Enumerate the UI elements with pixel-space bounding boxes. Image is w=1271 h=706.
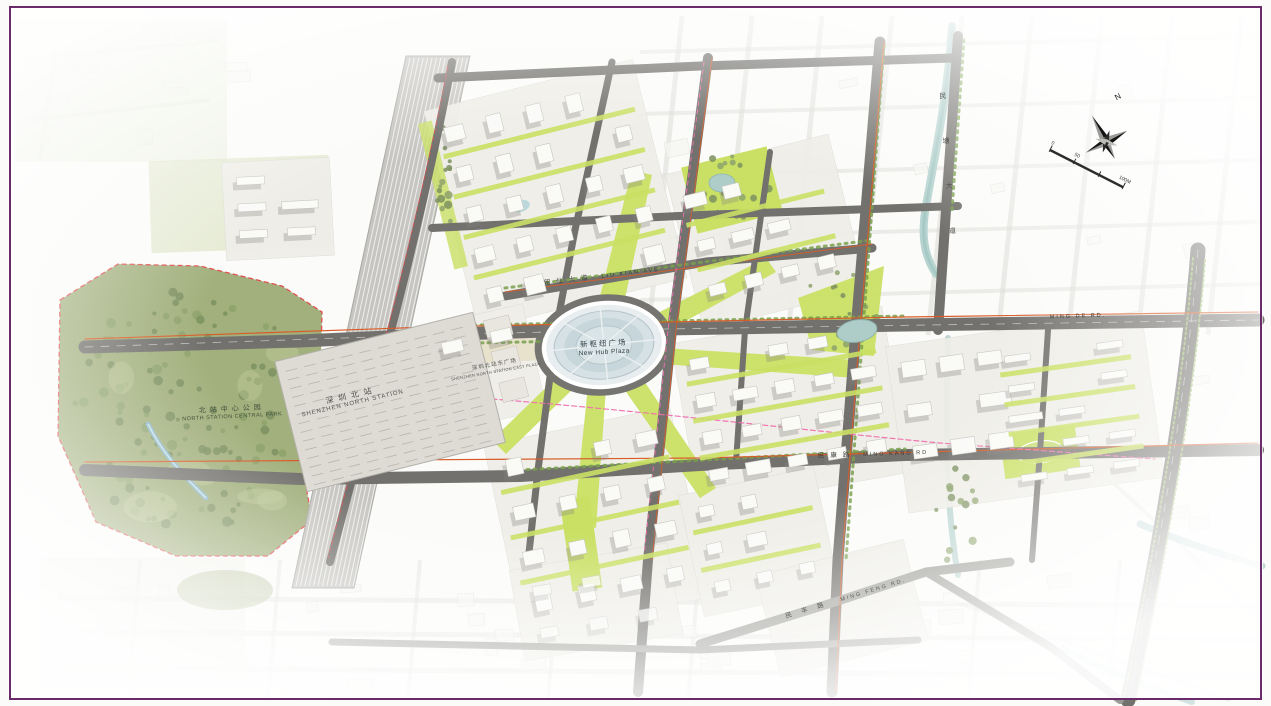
- map-artwork: [0, 0, 1271, 706]
- masterplan-map-canvas: 北站中心公园 NORTH STATION CENTRAL PARK 深圳北站 S…: [0, 0, 1271, 706]
